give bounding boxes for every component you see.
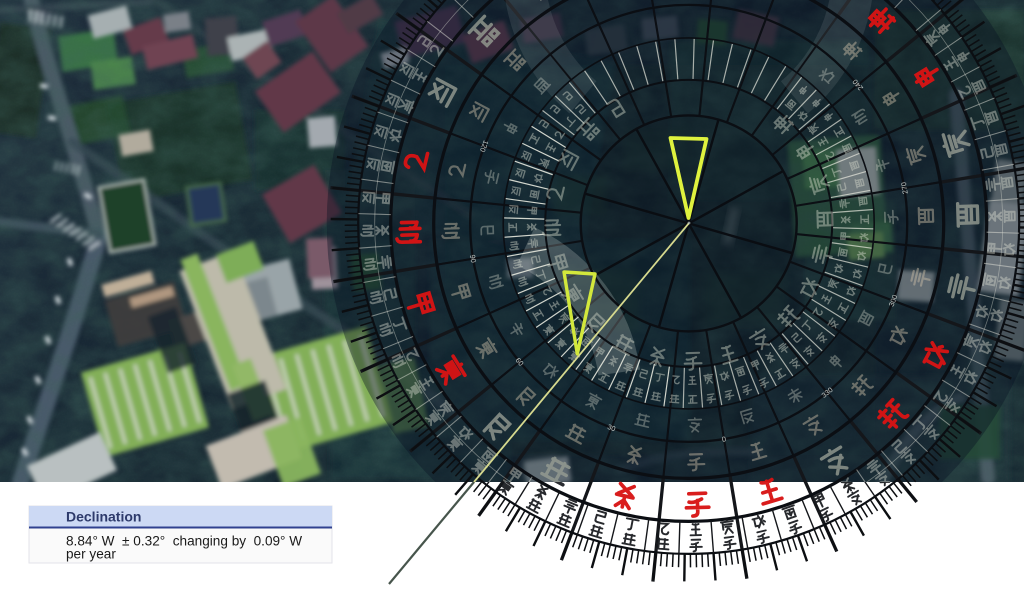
svg-text:90: 90 [468, 254, 478, 263]
svg-text:per year: per year [66, 547, 116, 562]
svg-text:Declination: Declination [66, 509, 141, 525]
svg-text:270: 270 [899, 181, 910, 194]
